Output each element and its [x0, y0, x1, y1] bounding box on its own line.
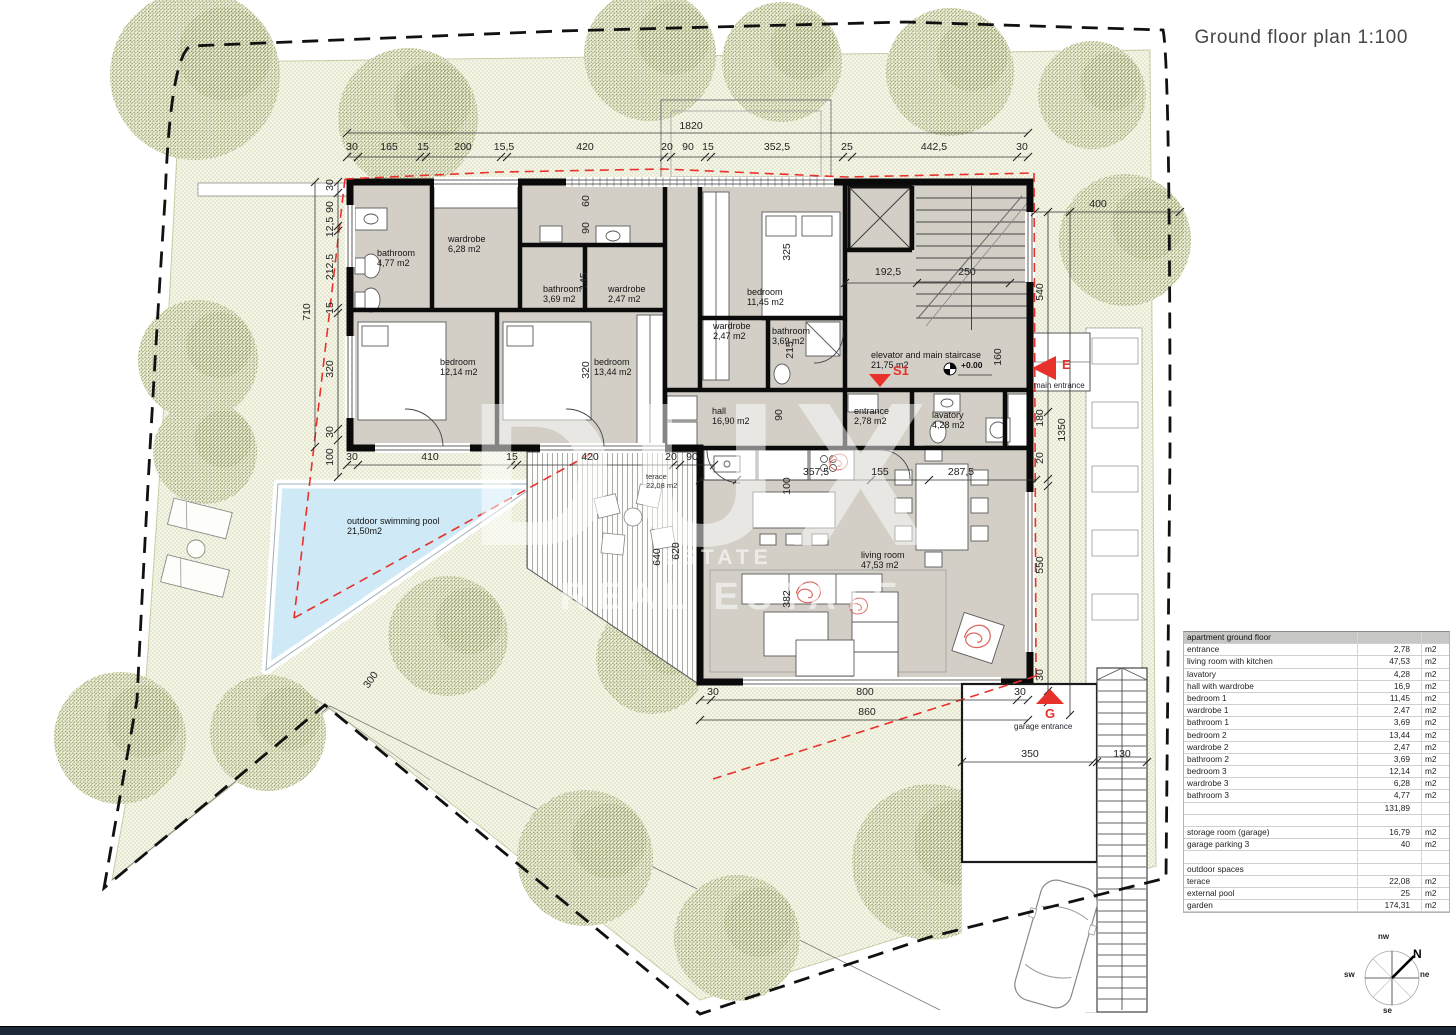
- area-table-row: external pool25m2: [1184, 888, 1449, 900]
- dimension-label: 15: [702, 141, 714, 153]
- garage-entrance-arrow-icon: [1036, 689, 1064, 704]
- room-label: bedroom13,44 m2: [594, 357, 632, 377]
- compass-north: N: [1413, 947, 1422, 961]
- dimension-label: 860: [858, 706, 876, 718]
- dimension-label: 20: [665, 451, 677, 463]
- room-label: bedroom12,14 m2: [440, 357, 478, 377]
- area-table-row: [1184, 815, 1449, 827]
- room-label: lavatory4,28 m2: [932, 410, 965, 430]
- page-title: Ground floor plan 1:100: [1150, 27, 1408, 49]
- level-value: +0.00: [961, 360, 983, 370]
- main-entrance-arrow-icon: [1032, 356, 1056, 380]
- dimension-label: 165: [380, 141, 398, 153]
- dimension-label: 90: [324, 201, 336, 213]
- room-label: living room47,53 m2: [861, 550, 905, 570]
- dimension-label: 180: [1034, 409, 1046, 427]
- dimension-label: 155: [871, 466, 889, 478]
- dimension-label: 620: [670, 542, 682, 560]
- dimension-label: 250: [958, 266, 976, 278]
- dimension-label: 20: [1034, 452, 1046, 464]
- dimension-label: 130: [1113, 748, 1131, 760]
- compass-nw: nw: [1378, 932, 1389, 941]
- dimension-label: 200: [454, 141, 472, 153]
- dimension-label: 710: [301, 303, 313, 321]
- area-table-row: wardrobe 12,47m2: [1184, 705, 1449, 717]
- dimension-label: 640: [651, 548, 663, 566]
- dimension-label: 420: [576, 141, 594, 153]
- compass-ne: ne: [1420, 970, 1429, 979]
- dimension-label: 20: [661, 141, 673, 153]
- main-entrance-label: main entrance: [1034, 381, 1085, 390]
- dimension-label: 15: [324, 302, 336, 314]
- dimension-label: 30: [707, 686, 719, 698]
- dimension-label: 357,5: [803, 466, 829, 478]
- area-table-row: wardrobe 36,28m2: [1184, 778, 1449, 790]
- bottom-bar: [0, 1026, 1456, 1035]
- area-table-row: garden174,31m2: [1184, 900, 1449, 912]
- dimension-label: 320: [580, 361, 592, 379]
- dimension-label: 15: [417, 141, 429, 153]
- dimension-label: 212,5: [324, 254, 336, 280]
- area-table-row: bathroom 13,69m2: [1184, 717, 1449, 729]
- dimension-label: 90: [682, 141, 694, 153]
- dimension-label: 352,5: [764, 141, 790, 153]
- room-label: wardrobe6,28 m2: [448, 234, 486, 254]
- area-table-row: outdoor spaces: [1184, 864, 1449, 876]
- dimension-label: 15: [506, 451, 518, 463]
- room-label: bathroom3,69 m2: [543, 284, 581, 304]
- dimension-label: 90: [773, 409, 785, 421]
- room-label: wardrobe2,47 m2: [608, 284, 646, 304]
- garage-entrance-label: garage entrance: [1014, 722, 1072, 731]
- area-table-row: wardrobe 22,47m2: [1184, 742, 1449, 754]
- area-table-row: apartment ground floor: [1184, 632, 1449, 644]
- dimension-label: 320: [324, 360, 336, 378]
- dimension-label: 287,5: [948, 466, 974, 478]
- area-table-row: [1184, 851, 1449, 863]
- area-table-row: garage parking 340m2: [1184, 839, 1449, 851]
- area-table-row: living room with kitchen47,53m2: [1184, 656, 1449, 668]
- dimension-label: 350: [1021, 748, 1039, 760]
- dimension-label: 800: [856, 686, 874, 698]
- dimension-label: 550: [1034, 556, 1046, 574]
- dimension-label: 420: [581, 451, 599, 463]
- dimension-label: 25: [841, 141, 853, 153]
- area-table-row: 131,89: [1184, 803, 1449, 815]
- garage: [962, 684, 1097, 862]
- dimension-label: 1350: [1056, 418, 1068, 441]
- area-table-row: hall with wardrobe16,9m2: [1184, 681, 1449, 693]
- dimension-label: 15,5: [494, 141, 514, 153]
- dimension-label: 1820: [679, 120, 702, 132]
- compass-sw: sw: [1344, 970, 1355, 979]
- dimension-label: 325: [781, 243, 793, 261]
- dimension-label: 100: [781, 477, 793, 495]
- area-table-row: bathroom 34,77m2: [1184, 790, 1449, 802]
- area-table: apartment ground floorentrance2,78m2livi…: [1183, 631, 1450, 913]
- dimension-label: 30: [1014, 686, 1026, 698]
- dimension-label: 60: [580, 195, 592, 207]
- dimension-label: 30: [346, 141, 358, 153]
- dimension-label: 540: [1034, 283, 1046, 301]
- dimension-label: 30: [1034, 669, 1046, 681]
- dimension-label: 30: [346, 451, 358, 463]
- dimension-label: 30: [324, 426, 336, 438]
- area-table-row: storage room (garage)16,79m2: [1184, 827, 1449, 839]
- dimension-label: 400: [1089, 198, 1107, 210]
- room-label: wardrobe2,47 m2: [713, 321, 751, 341]
- dimension-label: 90: [686, 451, 698, 463]
- dimension-label: 90: [580, 222, 592, 234]
- staircase-arrow-icon: [869, 374, 891, 387]
- dimension-label: 382: [781, 590, 793, 608]
- room-label: entrance2,78 m2: [854, 406, 889, 426]
- area-table-row: entrance2,78m2: [1184, 644, 1449, 656]
- room-label: terace22,08 m2: [646, 473, 677, 490]
- area-table-row: bedroom 213,44m2: [1184, 730, 1449, 742]
- floor-plan-sheet: DUX ESTATE REAL ESTATE Ground floor plan…: [0, 0, 1456, 1035]
- area-table-row: bedroom 312,14m2: [1184, 766, 1449, 778]
- room-label: bathroom3,69 m2: [772, 326, 810, 346]
- dimension-label: 30: [324, 179, 336, 191]
- area-table-row: terace22,08m2: [1184, 876, 1449, 888]
- area-table-row: bathroom 23,69m2: [1184, 754, 1449, 766]
- room-label: outdoor swimming pool21,50m2: [347, 516, 440, 536]
- area-table-row: bedroom 111,45m2: [1184, 693, 1449, 705]
- room-label: bathroom4,77 m2: [377, 248, 415, 268]
- dimension-label: 100: [324, 448, 336, 466]
- area-table-row: lavatory4,28m2: [1184, 669, 1449, 681]
- dimension-label: 30: [1016, 141, 1028, 153]
- room-label: hall16,90 m2: [712, 406, 750, 426]
- dimension-label: 192,5: [875, 266, 901, 278]
- dimension-label: 12,5: [324, 217, 336, 237]
- compass-rose-icon: [1365, 951, 1419, 1005]
- dimension-label: 410: [421, 451, 439, 463]
- dimension-label: 442,5: [921, 141, 947, 153]
- staircase-code: S1: [893, 363, 909, 378]
- room-label: bedroom11,45 m2: [747, 287, 784, 307]
- compass-se: se: [1383, 1006, 1392, 1015]
- dimension-label: 160: [992, 348, 1004, 366]
- garage-entrance-code: G: [1045, 706, 1055, 721]
- main-entrance-code: E: [1062, 357, 1071, 372]
